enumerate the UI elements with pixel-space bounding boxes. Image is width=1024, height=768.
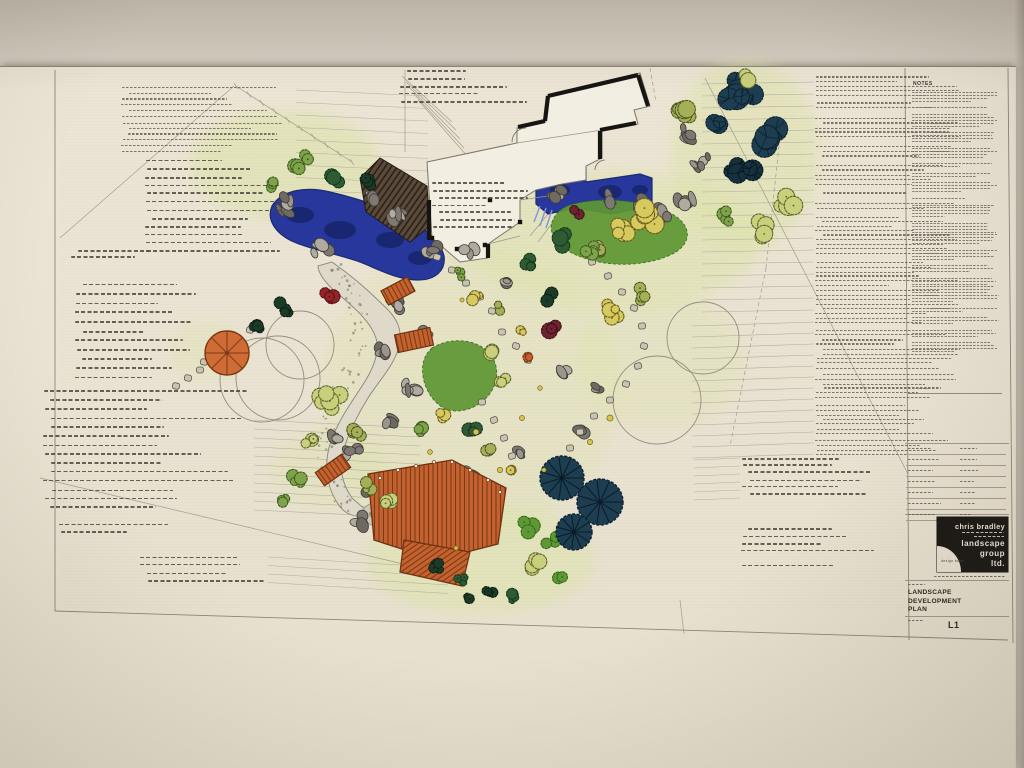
stipple-dot (351, 292, 353, 294)
handwriting-line (912, 348, 997, 349)
branch-dot (654, 223, 656, 225)
branch-dot (328, 296, 330, 298)
branch-dot (487, 591, 489, 593)
photo-of-landscape-development-plan: NOTES chris bradley landscape group ltd.… (0, 0, 1024, 768)
stipple-dot (345, 297, 348, 300)
stipple-dot (318, 444, 321, 447)
info-table-label (908, 459, 939, 460)
handwriting-line (407, 70, 466, 72)
handwriting-line (815, 184, 912, 185)
accent-shrub-dot (542, 468, 546, 472)
titleblock-divider (905, 616, 1009, 617)
info-table-value (960, 470, 978, 471)
tree-canopy (552, 230, 568, 246)
tree-canopy (414, 425, 423, 434)
handwriting-line (912, 92, 997, 93)
handwriting-line (148, 580, 265, 582)
stepping-stone (184, 374, 192, 381)
drawing-info-table (906, 444, 1006, 521)
deck-post (414, 464, 417, 467)
stipple-dot (343, 367, 345, 369)
stepping-stone (172, 382, 180, 389)
stipple-dot (350, 339, 352, 341)
handwriting-line (76, 367, 172, 369)
handwriting-line (912, 301, 953, 302)
sheet-border-line (1008, 68, 1013, 643)
stipple-dot (326, 441, 328, 443)
info-table-row (906, 488, 1006, 499)
handwriting-line (816, 304, 959, 305)
sheet-title-line: DEVELOPMENT (908, 598, 1003, 607)
handwriting-line (439, 211, 511, 213)
handwriting-line (50, 506, 156, 508)
company-word-group: group (980, 550, 1005, 558)
tree-cluster (523, 352, 533, 362)
handwriting-line (44, 390, 248, 392)
info-table-value (960, 514, 971, 515)
handwriting-line (816, 81, 897, 82)
tree-canopy (497, 377, 507, 387)
tree-canopy (434, 558, 444, 568)
stipple-dot (326, 418, 328, 420)
branch-dot (561, 576, 563, 578)
handwriting-line (401, 101, 527, 103)
stipple-dot (341, 479, 343, 481)
handwriting-line (912, 226, 988, 227)
handwriting-line (400, 86, 506, 88)
gazebo-peak (225, 351, 229, 355)
branch-dot (460, 276, 462, 278)
info-table-row (906, 466, 1006, 477)
handwriting-line (742, 458, 839, 460)
handwriting-line (152, 218, 248, 220)
sheet-number: L1 (948, 620, 960, 630)
accent-shrub-dot (428, 450, 433, 455)
handwriting-line (129, 110, 267, 111)
accent-shrub-dot (454, 546, 458, 550)
stipple-dot (347, 387, 349, 389)
tree-canopy (570, 206, 579, 215)
stipple-dot (347, 510, 349, 512)
handwriting-line (815, 175, 910, 176)
info-table-label (908, 514, 935, 515)
sheet-border-line (55, 611, 1008, 640)
handwriting-line (912, 330, 992, 331)
accent-shrub-dot (497, 467, 502, 472)
handwriting-line (823, 384, 925, 385)
stipple-dot (350, 314, 351, 315)
tree-cluster (380, 493, 398, 508)
accent-shrub-dot (538, 386, 543, 391)
handwriting-line (816, 368, 940, 369)
company-credentials-line (962, 532, 1004, 533)
stipple-dot (340, 263, 343, 266)
deck-post (432, 460, 435, 463)
handwriting-line (399, 93, 478, 95)
handwriting-line (912, 205, 994, 206)
handwriting-line (816, 272, 914, 273)
tree-canopy (507, 588, 518, 599)
handwriting-line (822, 339, 902, 340)
stipple-dot (353, 283, 355, 285)
handwriting-line (912, 298, 998, 299)
info-table-value (960, 492, 975, 493)
branch-dot (298, 168, 300, 170)
stipple-dot (333, 481, 336, 484)
sheet-number-label (908, 620, 923, 621)
handwriting-line (912, 250, 997, 251)
handwriting-line (815, 118, 906, 119)
handwriting-line (912, 311, 963, 312)
stipple-dot (347, 496, 349, 498)
handwriting-line (815, 313, 926, 314)
info-table-value (960, 459, 977, 460)
handwriting-line (817, 362, 932, 363)
info-table-row (906, 499, 1006, 510)
tree-canopy (319, 386, 334, 401)
tree-canopy (532, 554, 547, 569)
handwriting-line (816, 86, 957, 87)
handwriting-line (912, 120, 997, 121)
branch-dot (785, 196, 787, 198)
accent-shrub-dot (473, 429, 479, 435)
stipple-dot (340, 503, 342, 505)
handwriting-line (147, 250, 280, 252)
branch-dot (433, 567, 435, 569)
handwriting-line (77, 349, 190, 351)
stipple-dot (324, 418, 326, 420)
notes-heading: NOTES (913, 81, 933, 87)
handwriting-line (816, 405, 905, 406)
branch-dot (585, 250, 587, 252)
handwriting-line (816, 95, 926, 96)
handwriting-line (912, 232, 996, 233)
handwriting-line (817, 102, 912, 103)
handwriting-line (440, 219, 515, 221)
tree-canopy (640, 291, 650, 301)
handwriting-line (816, 275, 920, 276)
stipple-dot (317, 457, 318, 458)
handwriting-line (912, 95, 998, 96)
stipple-dot (340, 506, 342, 508)
tree-canopy (740, 73, 756, 89)
stipple-dot (325, 448, 327, 450)
handwriting-line (122, 98, 226, 99)
gazebo (205, 331, 249, 375)
handwriting-line (816, 217, 899, 218)
handwriting-line (816, 343, 894, 344)
branch-dot (365, 177, 367, 179)
stipple-dot (344, 275, 346, 277)
branch-dot (527, 531, 529, 533)
tree-canopy (526, 354, 533, 361)
handwriting-line (817, 429, 899, 430)
sheet-title-line: LANDSCAPE (908, 589, 1003, 598)
handwriting-line (432, 205, 487, 207)
conifer-pleat (742, 90, 743, 97)
info-table-value (960, 481, 974, 482)
stipple-dot (360, 321, 362, 323)
handwriting-line (76, 293, 196, 295)
branch-dot (307, 158, 309, 160)
stipple-dot (330, 269, 333, 272)
stepping-stone (638, 323, 645, 330)
accent-shrub-dot (519, 415, 524, 420)
handwriting-line (51, 462, 161, 464)
handwriting-line (83, 331, 144, 333)
stipple-dot (338, 283, 340, 285)
post (518, 220, 522, 224)
handwriting-line (75, 311, 173, 313)
branch-dot (457, 269, 459, 271)
stipple-dot (366, 313, 368, 315)
handwriting-line (147, 192, 265, 194)
handwriting-line (815, 230, 915, 231)
handwriting-line (45, 453, 201, 455)
handwriting-line (912, 101, 971, 102)
branch-dot (599, 249, 601, 251)
handwriting-line (912, 173, 991, 174)
tree-canopy (436, 409, 445, 418)
stipple-dot (359, 295, 361, 297)
deck-post (468, 468, 471, 471)
handwriting-line (129, 128, 251, 129)
stipple-dot (349, 373, 351, 375)
handwriting-line (815, 203, 953, 204)
tree-canopy (294, 472, 307, 485)
handwriting-line (122, 87, 276, 88)
branch-dot (457, 578, 459, 580)
company-address-line (934, 576, 1006, 577)
info-table-row (906, 455, 1006, 466)
branch-dot (356, 431, 358, 433)
branch-dot (578, 213, 580, 215)
sheet-title: LANDSCAPE DEVELOPMENT PLAN (908, 589, 1003, 615)
stepping-stone (478, 399, 485, 405)
handwriting-line (815, 128, 951, 129)
stipple-dot (352, 381, 355, 384)
handwriting-line (816, 179, 931, 180)
company-word-ltd: ltd. (991, 560, 1005, 568)
info-table-row (906, 444, 1006, 455)
stipple-dot (321, 432, 323, 434)
tree-canopy (467, 294, 479, 306)
titleblock-divider (905, 580, 1009, 581)
handwriting-line (815, 440, 948, 441)
tree-cluster (553, 572, 568, 584)
handwriting-line (748, 471, 872, 473)
handwriting-line (433, 190, 528, 192)
handwriting-line (912, 117, 995, 118)
info-table-row (906, 477, 1006, 488)
stipple-dot (349, 302, 351, 304)
handwriting-line (742, 543, 823, 545)
handwriting-line (912, 198, 965, 199)
handwriting-line (912, 126, 981, 127)
handwriting-line (51, 426, 164, 428)
handwriting-line (433, 226, 513, 228)
info-table-value (960, 503, 976, 504)
handwriting-line (432, 182, 505, 184)
handwriting-line (912, 278, 992, 279)
handwriting-line (912, 98, 988, 99)
info-table-label (908, 481, 936, 482)
tree-canopy (611, 305, 619, 313)
stepping-stone (590, 413, 597, 419)
stepping-stone (634, 362, 642, 369)
handwriting-line (75, 339, 182, 341)
branch-dot (763, 233, 765, 235)
handwriting-line (140, 564, 239, 566)
handwriting-line (123, 139, 279, 140)
branch-dot (312, 438, 314, 440)
handwriting-line (912, 281, 996, 282)
handwriting-line (45, 408, 148, 410)
handwriting-line (748, 528, 832, 530)
tree-canopy (280, 308, 289, 317)
stipple-dot (361, 313, 362, 314)
stipple-dot (352, 332, 355, 335)
stipple-dot (360, 349, 362, 351)
handwriting-line (822, 169, 923, 170)
handwriting-line (816, 318, 907, 319)
handwriting-line (822, 221, 942, 222)
stepping-stone (566, 445, 574, 452)
stipple-dot (348, 306, 351, 309)
branch-dot (546, 300, 548, 302)
branch-dot (725, 210, 727, 212)
tree-canopy (520, 329, 526, 335)
stepping-stone (488, 308, 496, 315)
signature-line (908, 393, 1002, 394)
branch-dot (469, 598, 471, 600)
stepping-stone (618, 289, 626, 296)
info-table-label (908, 492, 933, 493)
stipple-dot (361, 328, 363, 330)
tree-canopy (274, 297, 286, 309)
stipple-dot (336, 268, 339, 271)
handwriting-line (439, 197, 528, 199)
accent-shrub-dot (587, 439, 592, 444)
handwriting-line (741, 550, 873, 552)
handwriting-line (61, 531, 127, 533)
stipple-dot (357, 373, 360, 376)
handwriting-line (912, 151, 997, 152)
handwriting-line (912, 154, 987, 155)
handwriting-line (816, 454, 920, 455)
stepping-stone (576, 429, 583, 435)
branch-dot (510, 469, 512, 471)
handwriting-line (912, 271, 970, 272)
handwriting-line (823, 192, 907, 193)
handwriting-line (912, 148, 990, 149)
handwriting-line (912, 176, 977, 177)
stipple-dot (348, 285, 350, 287)
handwriting-line (912, 308, 997, 309)
tree-canopy (541, 538, 552, 549)
handwriting-line (147, 168, 251, 170)
info-table-value (960, 448, 977, 449)
stipple-dot (346, 279, 349, 282)
stipple-dot (358, 352, 361, 355)
handwriting-line (123, 123, 283, 124)
sheet-title-label (908, 584, 925, 585)
stipple-dot (320, 437, 322, 439)
deck-post (378, 476, 381, 479)
post (430, 236, 434, 240)
stipple-dot (347, 289, 349, 291)
sheet-title-line: PLAN (908, 606, 1003, 615)
stipple-dot (341, 277, 342, 278)
handwriting-line (912, 123, 994, 124)
handwriting-line (121, 145, 233, 146)
branch-dot (728, 221, 730, 223)
stepping-stone (606, 397, 614, 404)
company-credentials-line (974, 536, 1004, 537)
handwriting-line (912, 157, 983, 158)
stipple-dot (358, 355, 360, 357)
handwriting-line (815, 379, 956, 380)
branch-dot (463, 577, 465, 579)
stepping-stone (196, 367, 203, 373)
handwriting-line (50, 399, 162, 401)
handwriting-line (912, 336, 978, 337)
handwriting-line (817, 208, 924, 209)
handwriting-line (75, 321, 190, 323)
handwriting-line (121, 104, 232, 105)
rock (389, 209, 397, 219)
stipple-dot (347, 370, 349, 372)
stipple-dot (358, 303, 361, 306)
stepping-stone (500, 434, 508, 442)
branch-dot (257, 325, 259, 327)
handwriting-line (816, 299, 910, 300)
handwriting-line (750, 493, 869, 495)
deck-post (486, 478, 489, 481)
branch-dot (793, 205, 795, 207)
handwriting-line (43, 435, 169, 437)
stipple-dot (354, 322, 357, 325)
handwriting-line (817, 415, 900, 416)
handwriting-line (912, 229, 988, 230)
handwriting-line (816, 136, 960, 137)
accent-shrub-dot (460, 298, 464, 302)
branch-dot (339, 394, 341, 396)
company-tagline: design build (941, 559, 964, 563)
tree-canopy (278, 497, 288, 507)
stipple-dot (362, 345, 364, 347)
handwriting-line (912, 333, 996, 334)
handwriting-line (816, 433, 933, 434)
stepping-stone (498, 329, 505, 335)
stipple-dot (336, 484, 339, 487)
handwriting-line (71, 256, 135, 258)
stipple-dot (334, 500, 336, 502)
handwriting-line (51, 418, 242, 420)
branch-dot (551, 328, 553, 330)
deck-post (396, 468, 399, 471)
company-name: chris bradley (955, 523, 1005, 530)
tree-canopy (678, 100, 695, 117)
accent-shrub-dot (607, 415, 613, 421)
handwriting-line (912, 351, 955, 352)
deck-post (498, 490, 501, 493)
stepping-stone (604, 272, 612, 279)
handwriting-line (912, 323, 953, 324)
handwriting-line (823, 354, 959, 355)
wall-edge (1014, 0, 1024, 768)
stipple-dot (322, 416, 324, 418)
